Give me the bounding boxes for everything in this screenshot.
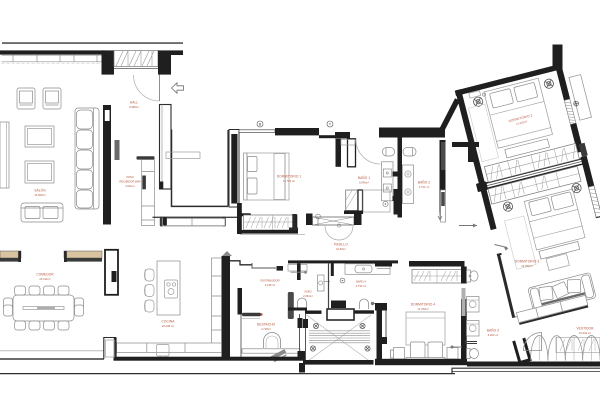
svg-text:6.995m²: 6.995m² [129,105,139,109]
svg-text:10.604 m²: 10.604 m² [579,331,591,335]
svg-text:3.730 m²: 3.730 m² [356,284,367,288]
svg-text:2.361m²: 2.361m² [303,294,313,298]
svg-text:6.300 m²: 6.300 m² [488,333,499,337]
svg-text:ASEO: ASEO [304,290,311,294]
svg-text:26.438 m²: 26.438 m² [162,324,174,328]
svg-text:DISTRIBUIDOR: DISTRIBUIDOR [260,279,279,283]
svg-text:4.011m²: 4.011m² [125,184,135,188]
svg-text:21.052m²: 21.052m² [521,264,532,268]
svg-text:BAÑO 3: BAÑO 3 [487,328,499,333]
svg-text:4.731 m²: 4.731 m² [419,185,430,189]
svg-text:COMEDOR: COMEDOR [36,273,54,277]
svg-text:12.66m²: 12.66m² [336,247,346,251]
svg-text:26.311m²: 26.311m² [39,277,50,281]
svg-text:PASILLO: PASILLO [334,243,348,247]
svg-text:4.138 m²: 4.138 m² [265,283,276,287]
svg-text:VESTIDOR: VESTIDOR [576,327,594,331]
svg-text:DORMITORIO 3: DORMITORIO 3 [515,260,540,264]
svg-text:RECIBIDOR BAR: RECIBIDOR BAR [119,180,140,184]
svg-text:BAÑO 1: BAÑO 1 [358,175,370,180]
svg-text:DORMITORIO 4: DORMITORIO 4 [411,303,436,307]
svg-text:5.040m²: 5.040m² [359,181,369,185]
svg-text:DESPACHO: DESPACHO [257,323,276,327]
svg-text:BAÑO 2: BAÑO 2 [418,180,430,185]
svg-text:SALÓN: SALÓN [34,188,46,193]
svg-text:HALL: HALL [130,101,139,105]
svg-text:14.703 m²: 14.703 m² [283,179,295,183]
svg-text:4.718m²: 4.718m² [261,327,271,331]
svg-text:ZONA: ZONA [126,175,134,179]
svg-text:COCINA: COCINA [162,320,176,324]
svg-text:11.753m²: 11.753m² [417,307,428,311]
svg-text:42.662m²: 42.662m² [34,193,45,197]
svg-text:DORMITORIO 1: DORMITORIO 1 [277,175,302,179]
